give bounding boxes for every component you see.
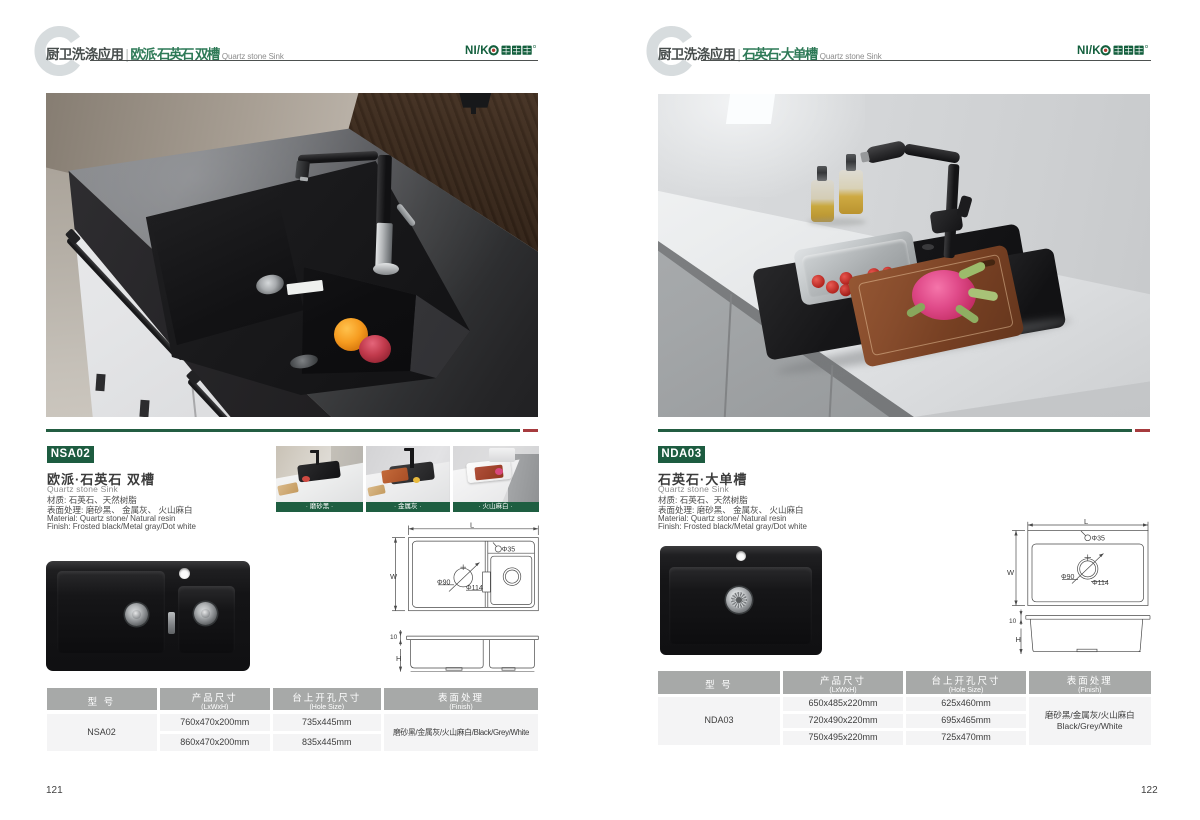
svg-text:NI/K: NI/K bbox=[1077, 45, 1101, 56]
svg-text:Φ114: Φ114 bbox=[466, 585, 483, 592]
svg-text:L: L bbox=[470, 521, 474, 530]
svg-text:Φ90: Φ90 bbox=[1061, 574, 1074, 581]
svg-text:10: 10 bbox=[1009, 618, 1017, 625]
svg-text:NI/K: NI/K bbox=[465, 45, 489, 56]
svg-text:10: 10 bbox=[390, 634, 398, 641]
svg-text:Φ114: Φ114 bbox=[1092, 580, 1109, 587]
svg-text:W: W bbox=[390, 572, 398, 581]
svg-text:L: L bbox=[1084, 518, 1088, 526]
svg-text:H: H bbox=[1016, 635, 1021, 644]
svg-text:W: W bbox=[1007, 568, 1015, 577]
svg-text:Φ90: Φ90 bbox=[437, 580, 450, 587]
svg-text:Φ35: Φ35 bbox=[1092, 536, 1105, 543]
svg-text:H: H bbox=[396, 654, 401, 663]
svg-text:Φ35: Φ35 bbox=[502, 547, 515, 554]
